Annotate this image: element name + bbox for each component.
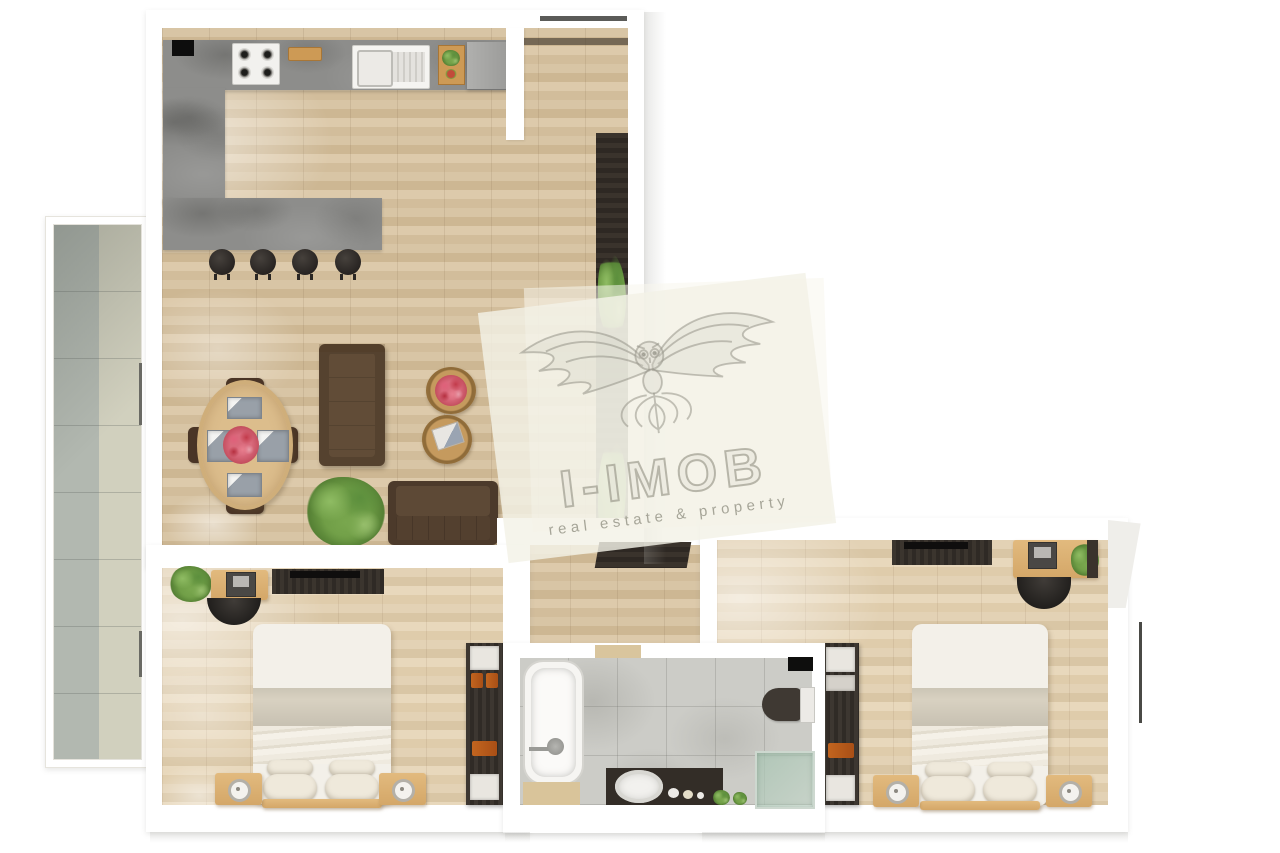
entry-window-line [540, 16, 627, 21]
place-setting [257, 430, 289, 462]
exterior-rail-line [1139, 622, 1142, 723]
soap-dish [668, 788, 679, 798]
bedroom-left-table-lamp [392, 779, 415, 802]
bedroom-right-table-lamp [1059, 781, 1082, 804]
balcony-door-handle [139, 363, 142, 425]
kitchen-sink [352, 45, 430, 89]
cutting-board [288, 47, 322, 61]
bedroom-right-laptop [1028, 542, 1057, 569]
washbasin [615, 770, 663, 803]
bedroom-right-wardrobe [822, 643, 859, 805]
potted-plant [307, 477, 385, 547]
wall-shadow [505, 833, 825, 842]
bedroom-left-bed [253, 624, 391, 804]
gas-hob [232, 43, 280, 85]
bathtub [523, 660, 584, 785]
coffee-table [422, 415, 472, 464]
breakfast-bar [163, 198, 382, 250]
toilet [762, 688, 801, 721]
book [431, 421, 464, 451]
serving-board [438, 45, 465, 85]
bathroom [503, 643, 825, 833]
bedroom-right-bed [912, 624, 1048, 806]
coffee-table [426, 367, 476, 414]
bathroom-plant [733, 792, 747, 805]
bedroom-left-plant [170, 566, 212, 602]
soap-dish [697, 792, 704, 799]
shower-cabin [755, 751, 815, 809]
bedroom-left-table-lamp [228, 779, 251, 802]
bedroom-right-table-lamp [886, 781, 909, 804]
bedroom-left-wardrobe [466, 643, 503, 805]
bedroom-right-desk-pad [1087, 540, 1098, 578]
watermark-overlay: I-IMOB real estate & property [478, 273, 836, 563]
toilet-tank [800, 687, 815, 723]
bedroom-left [146, 545, 530, 832]
bathroom-door-threshold [595, 645, 641, 658]
place-setting [227, 473, 262, 497]
bar-stool [209, 249, 235, 275]
flower-centerpiece [223, 426, 259, 464]
bedroom-right-tv-console [892, 540, 992, 565]
bathtub-apron [523, 782, 580, 805]
sofa [319, 344, 385, 466]
bathroom-window [788, 657, 813, 671]
bar-stool [335, 249, 361, 275]
kitchen-counter-left [163, 88, 225, 203]
kitchen-cabinet [467, 42, 508, 89]
bedroom-left-laptop [226, 572, 256, 597]
bar-stool [292, 249, 318, 275]
balcony [45, 216, 150, 768]
floor-plan: I-IMOB real estate & property [0, 0, 1280, 853]
loveseat [388, 481, 498, 545]
entry-floor-shadow [524, 38, 628, 45]
vanity-counter [606, 768, 723, 805]
bathroom-plant [713, 790, 730, 805]
open-door-leaf [1108, 520, 1142, 608]
wall-vent [172, 40, 194, 56]
bar-stool [250, 249, 276, 275]
bedroom-left-headboard [262, 799, 382, 808]
bedroom-left-tv-console [272, 569, 384, 594]
soap-dish [683, 790, 693, 799]
partition-wall [506, 28, 524, 140]
balcony-tiled-floor [53, 224, 142, 760]
wall-shadow [150, 832, 530, 843]
balcony-door-handle [139, 631, 142, 677]
wall-shadow [702, 832, 1128, 843]
place-setting [227, 397, 262, 419]
bedroom-right-headboard [920, 801, 1040, 810]
